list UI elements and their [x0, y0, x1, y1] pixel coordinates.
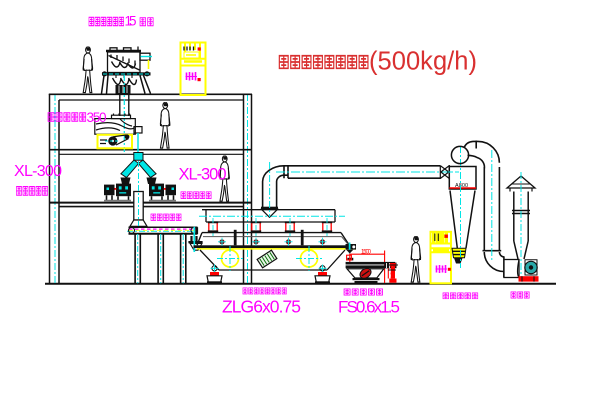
svg-text:XL-300: XL-300: [179, 166, 227, 184]
svg-text:1500: 1500: [361, 250, 372, 256]
svg-text:(500kg/h): (500kg/h): [369, 48, 477, 76]
svg-text:XL-300: XL-300: [14, 163, 62, 180]
svg-text:ZLG6x0.75: ZLG6x0.75: [222, 297, 301, 317]
svg-text:1.5: 1.5: [125, 14, 137, 29]
svg-text:FS0.6x1.5: FS0.6x1.5: [338, 298, 400, 317]
svg-text:350: 350: [87, 110, 107, 125]
svg-text:A800: A800: [455, 183, 468, 189]
